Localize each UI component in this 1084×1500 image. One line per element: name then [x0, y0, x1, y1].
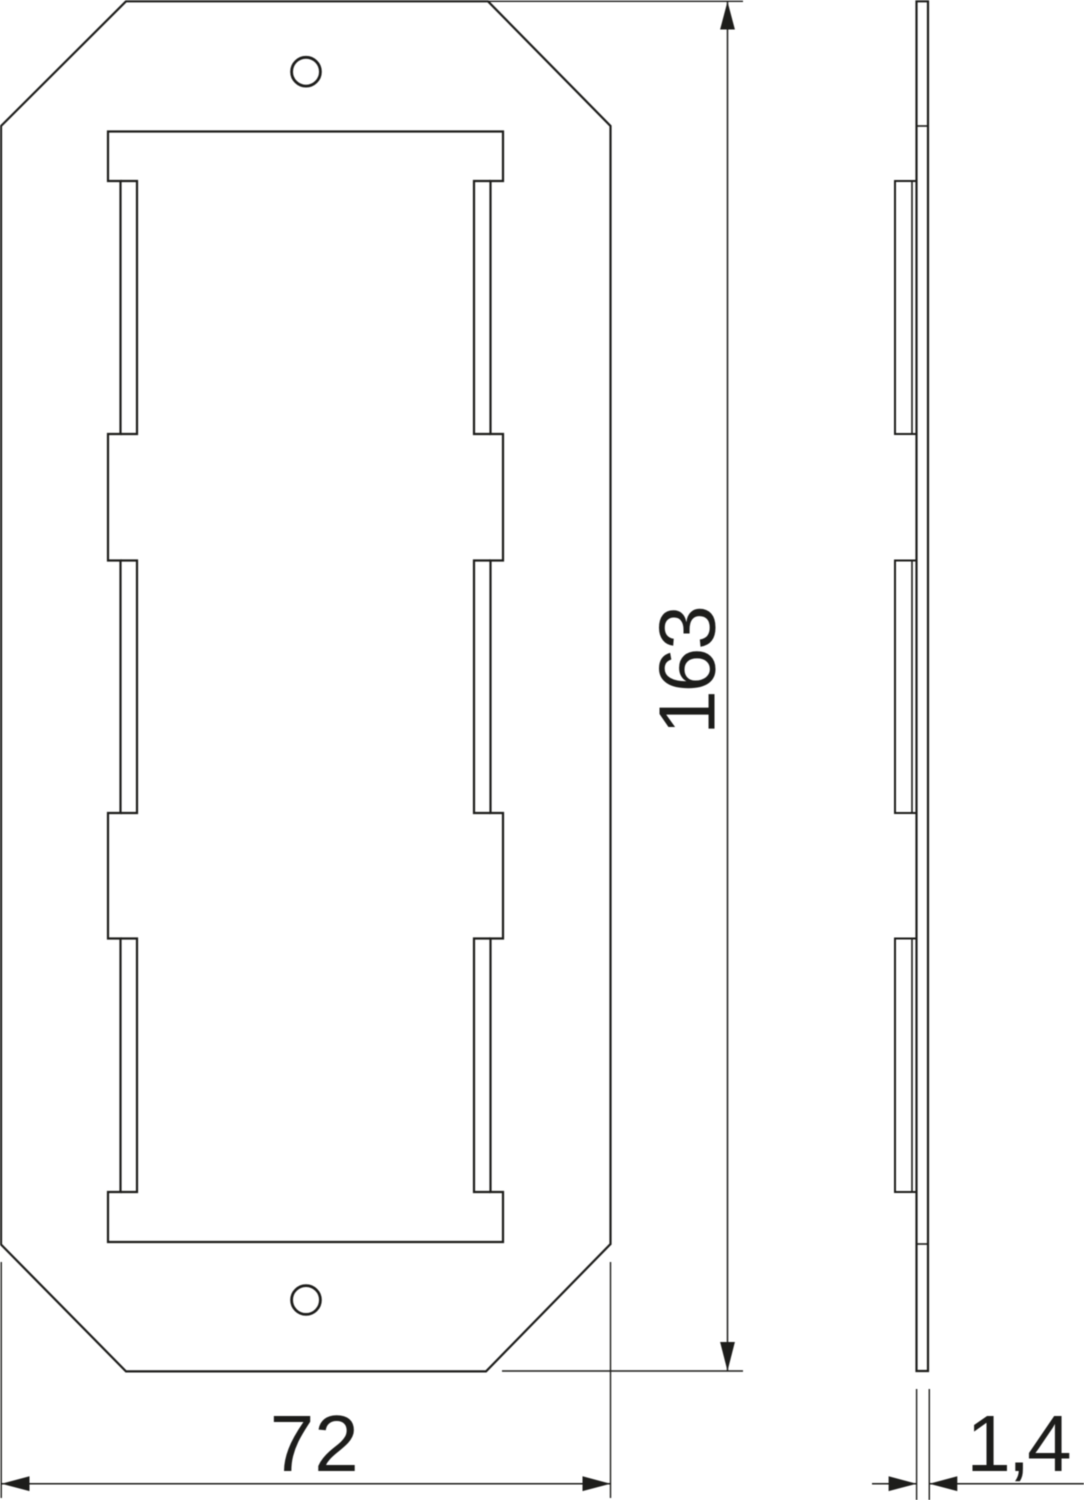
svg-text:1,4: 1,4 [966, 1399, 1070, 1488]
svg-text:163: 163 [642, 607, 731, 734]
svg-text:72: 72 [270, 1399, 359, 1488]
